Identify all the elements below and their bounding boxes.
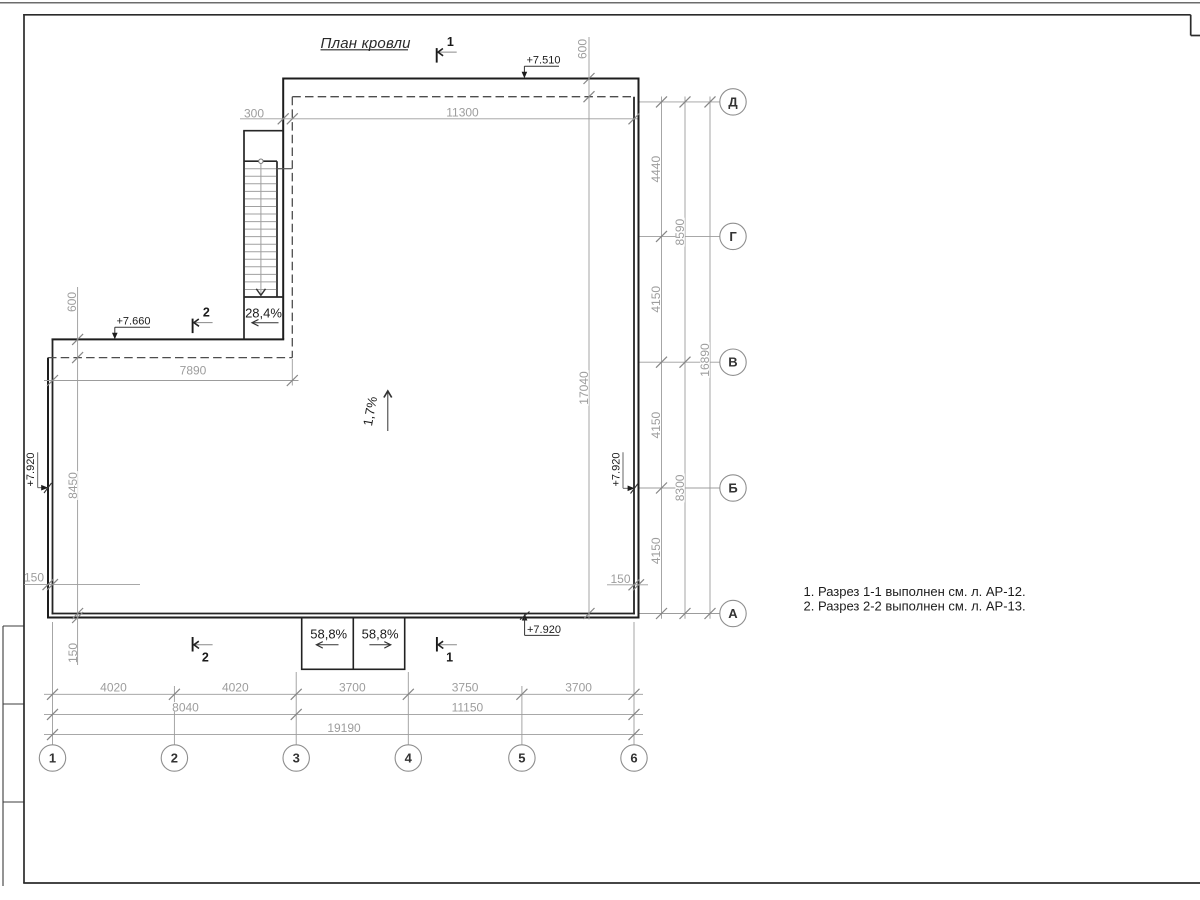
svg-text:2. Разрез 2-2 выполнен см. л.: 2. Разрез 2-2 выполнен см. л. АР-13. <box>804 599 1026 614</box>
svg-text:28,4%: 28,4% <box>245 306 282 321</box>
svg-text:8590: 8590 <box>673 218 687 245</box>
svg-text:Г: Г <box>729 229 737 244</box>
svg-text:4020: 4020 <box>100 681 127 695</box>
svg-text:7890: 7890 <box>180 364 207 378</box>
svg-text:19190: 19190 <box>327 721 361 735</box>
svg-text:В: В <box>728 355 737 370</box>
svg-text:3: 3 <box>293 751 300 766</box>
svg-text:1: 1 <box>49 751 56 766</box>
svg-text:+7.510: +7.510 <box>527 55 561 67</box>
svg-text:8300: 8300 <box>673 474 687 501</box>
svg-text:+7.660: +7.660 <box>117 316 151 328</box>
svg-text:3750: 3750 <box>452 681 479 695</box>
svg-text:1. Разрез 1-1 выполнен см. л.: 1. Разрез 1-1 выполнен см. л. АР-12. <box>804 584 1026 599</box>
svg-text:4150: 4150 <box>649 411 663 438</box>
svg-text:8450: 8450 <box>66 472 80 499</box>
svg-text:5: 5 <box>518 751 525 766</box>
svg-text:+7.920: +7.920 <box>611 453 623 487</box>
svg-text:300: 300 <box>244 107 264 121</box>
svg-text:4150: 4150 <box>649 537 663 564</box>
svg-text:17040: 17040 <box>577 371 591 405</box>
svg-text:+7.920: +7.920 <box>527 624 561 636</box>
svg-text:4150: 4150 <box>649 286 663 313</box>
svg-text:11150: 11150 <box>452 701 484 715</box>
svg-text:16890: 16890 <box>698 343 712 377</box>
svg-text:150: 150 <box>24 571 44 585</box>
svg-text:600: 600 <box>65 292 79 312</box>
svg-text:Б: Б <box>728 481 737 496</box>
svg-text:4: 4 <box>405 751 413 766</box>
svg-text:58,8%: 58,8% <box>362 627 399 642</box>
svg-text:1: 1 <box>447 35 454 49</box>
svg-text:4440: 4440 <box>649 156 663 183</box>
svg-text:4020: 4020 <box>222 681 249 695</box>
svg-text:+7.920: +7.920 <box>25 453 37 487</box>
svg-text:2: 2 <box>202 650 209 664</box>
svg-text:А: А <box>728 606 738 621</box>
svg-text:2: 2 <box>171 751 178 766</box>
svg-text:150: 150 <box>66 643 80 663</box>
svg-text:3700: 3700 <box>339 681 366 695</box>
svg-text:8040: 8040 <box>172 701 199 715</box>
svg-text:1: 1 <box>446 650 453 664</box>
svg-text:150: 150 <box>610 572 630 586</box>
svg-text:2: 2 <box>203 305 210 319</box>
svg-text:11300: 11300 <box>446 106 479 120</box>
svg-text:600: 600 <box>576 39 590 59</box>
svg-text:3700: 3700 <box>565 681 592 695</box>
svg-text:Д: Д <box>728 94 738 109</box>
svg-text:6: 6 <box>630 751 637 766</box>
svg-text:58,8%: 58,8% <box>310 627 347 642</box>
